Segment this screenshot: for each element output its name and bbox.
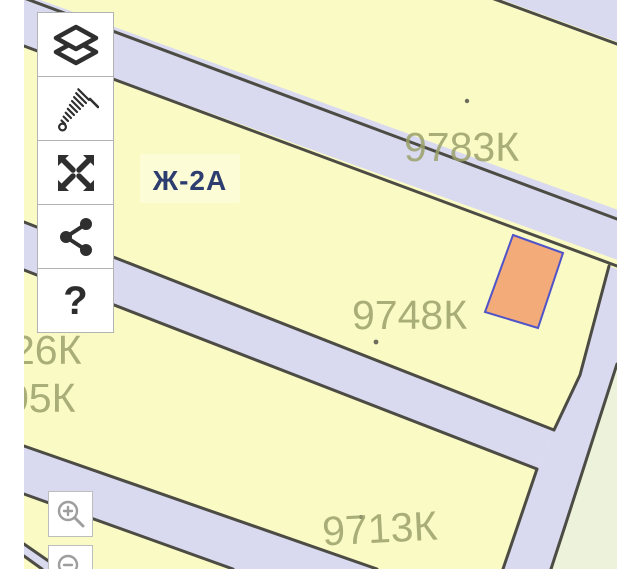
magnifier-minus-icon xyxy=(55,552,87,569)
expand-button[interactable] xyxy=(37,140,114,205)
point-marker xyxy=(374,340,379,345)
layers-icon xyxy=(53,22,99,68)
help-button[interactable]: ? xyxy=(37,268,114,333)
question-icon: ? xyxy=(63,281,87,321)
map-toolbar: ? xyxy=(37,12,114,333)
map-edge-left xyxy=(0,0,24,569)
magnifier-plus-icon xyxy=(55,498,87,530)
zoom-in-button[interactable] xyxy=(48,491,93,537)
share-button[interactable] xyxy=(37,204,114,269)
expand-arrows-icon xyxy=(53,150,99,196)
measure-icon xyxy=(53,86,99,132)
zone-label: Ж-2А xyxy=(152,165,227,196)
zone-badge: Ж-2А xyxy=(140,154,240,203)
map-edge-right xyxy=(617,0,640,569)
map-viewport: 9783К 9748К 9713К 26К 05К Ж-2А xyxy=(0,0,640,569)
parcel-label-9783: 9783К xyxy=(404,124,519,170)
zoom-out-button[interactable] xyxy=(48,545,93,569)
parcel-label-9713: 9713К xyxy=(321,503,438,555)
point-marker xyxy=(465,99,469,103)
measure-button[interactable] xyxy=(37,76,114,141)
parcel-label-9748: 9748К xyxy=(352,292,467,338)
layers-button[interactable] xyxy=(37,12,114,77)
share-icon xyxy=(53,214,99,260)
